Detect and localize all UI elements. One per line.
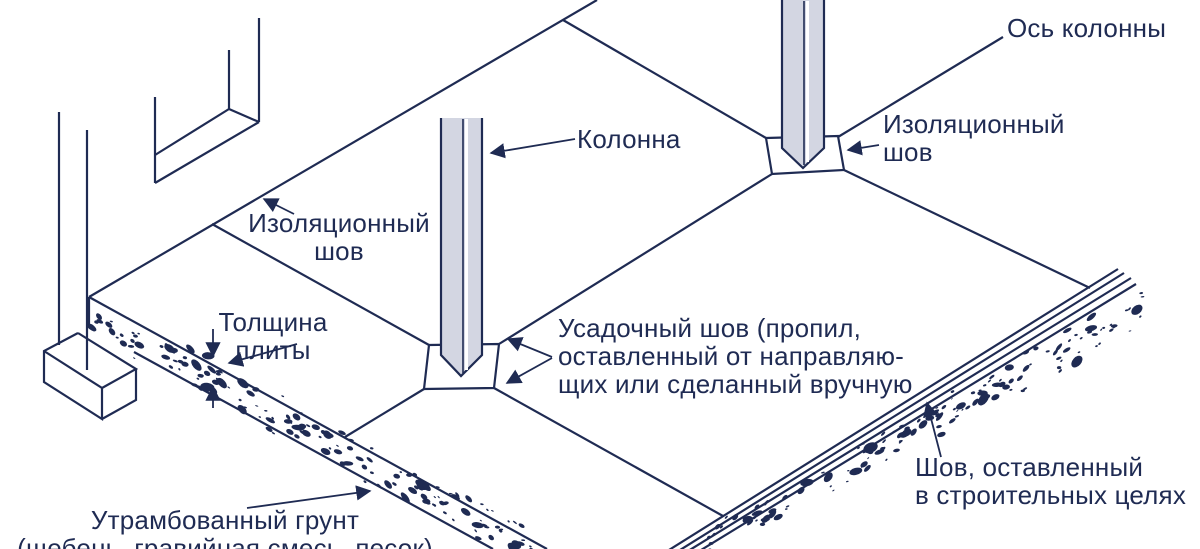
isometric-slab-diagram: Ось колонны Изоляционный шов Колонна Изо… bbox=[0, 0, 1200, 549]
label-shrinkage-joint: Усадочный шов (пропил, оставленный от на… bbox=[558, 314, 913, 398]
label-isolation-joint-left: Изоляционный шов bbox=[243, 209, 435, 265]
label-slab-thickness: Толщина плиты bbox=[192, 308, 354, 364]
column-arrow bbox=[491, 139, 575, 153]
shrinkage-lower-arrow bbox=[507, 358, 552, 383]
shrinkage-joint-lines bbox=[212, 20, 1090, 516]
label-column-axis-text: Ось колонны bbox=[1007, 14, 1166, 42]
label-compacted-soil: Утрамбованный грунт (щебень, гравийная с… bbox=[15, 506, 435, 549]
shrinkage-upper-arrow bbox=[508, 339, 552, 357]
label-construction-joint: Шов, оставленный в строительных целях bbox=[915, 453, 1186, 509]
isolation-right-arrow bbox=[848, 145, 879, 150]
label-column: Колонна bbox=[577, 125, 681, 153]
construction-joint-leader-arrow bbox=[927, 403, 941, 457]
center-column bbox=[441, 118, 482, 376]
label-isolation-joint-right: Изоляционный шов bbox=[883, 110, 1065, 166]
right-column bbox=[782, 0, 824, 168]
label-column-axis: Ось колонны bbox=[1007, 14, 1166, 42]
